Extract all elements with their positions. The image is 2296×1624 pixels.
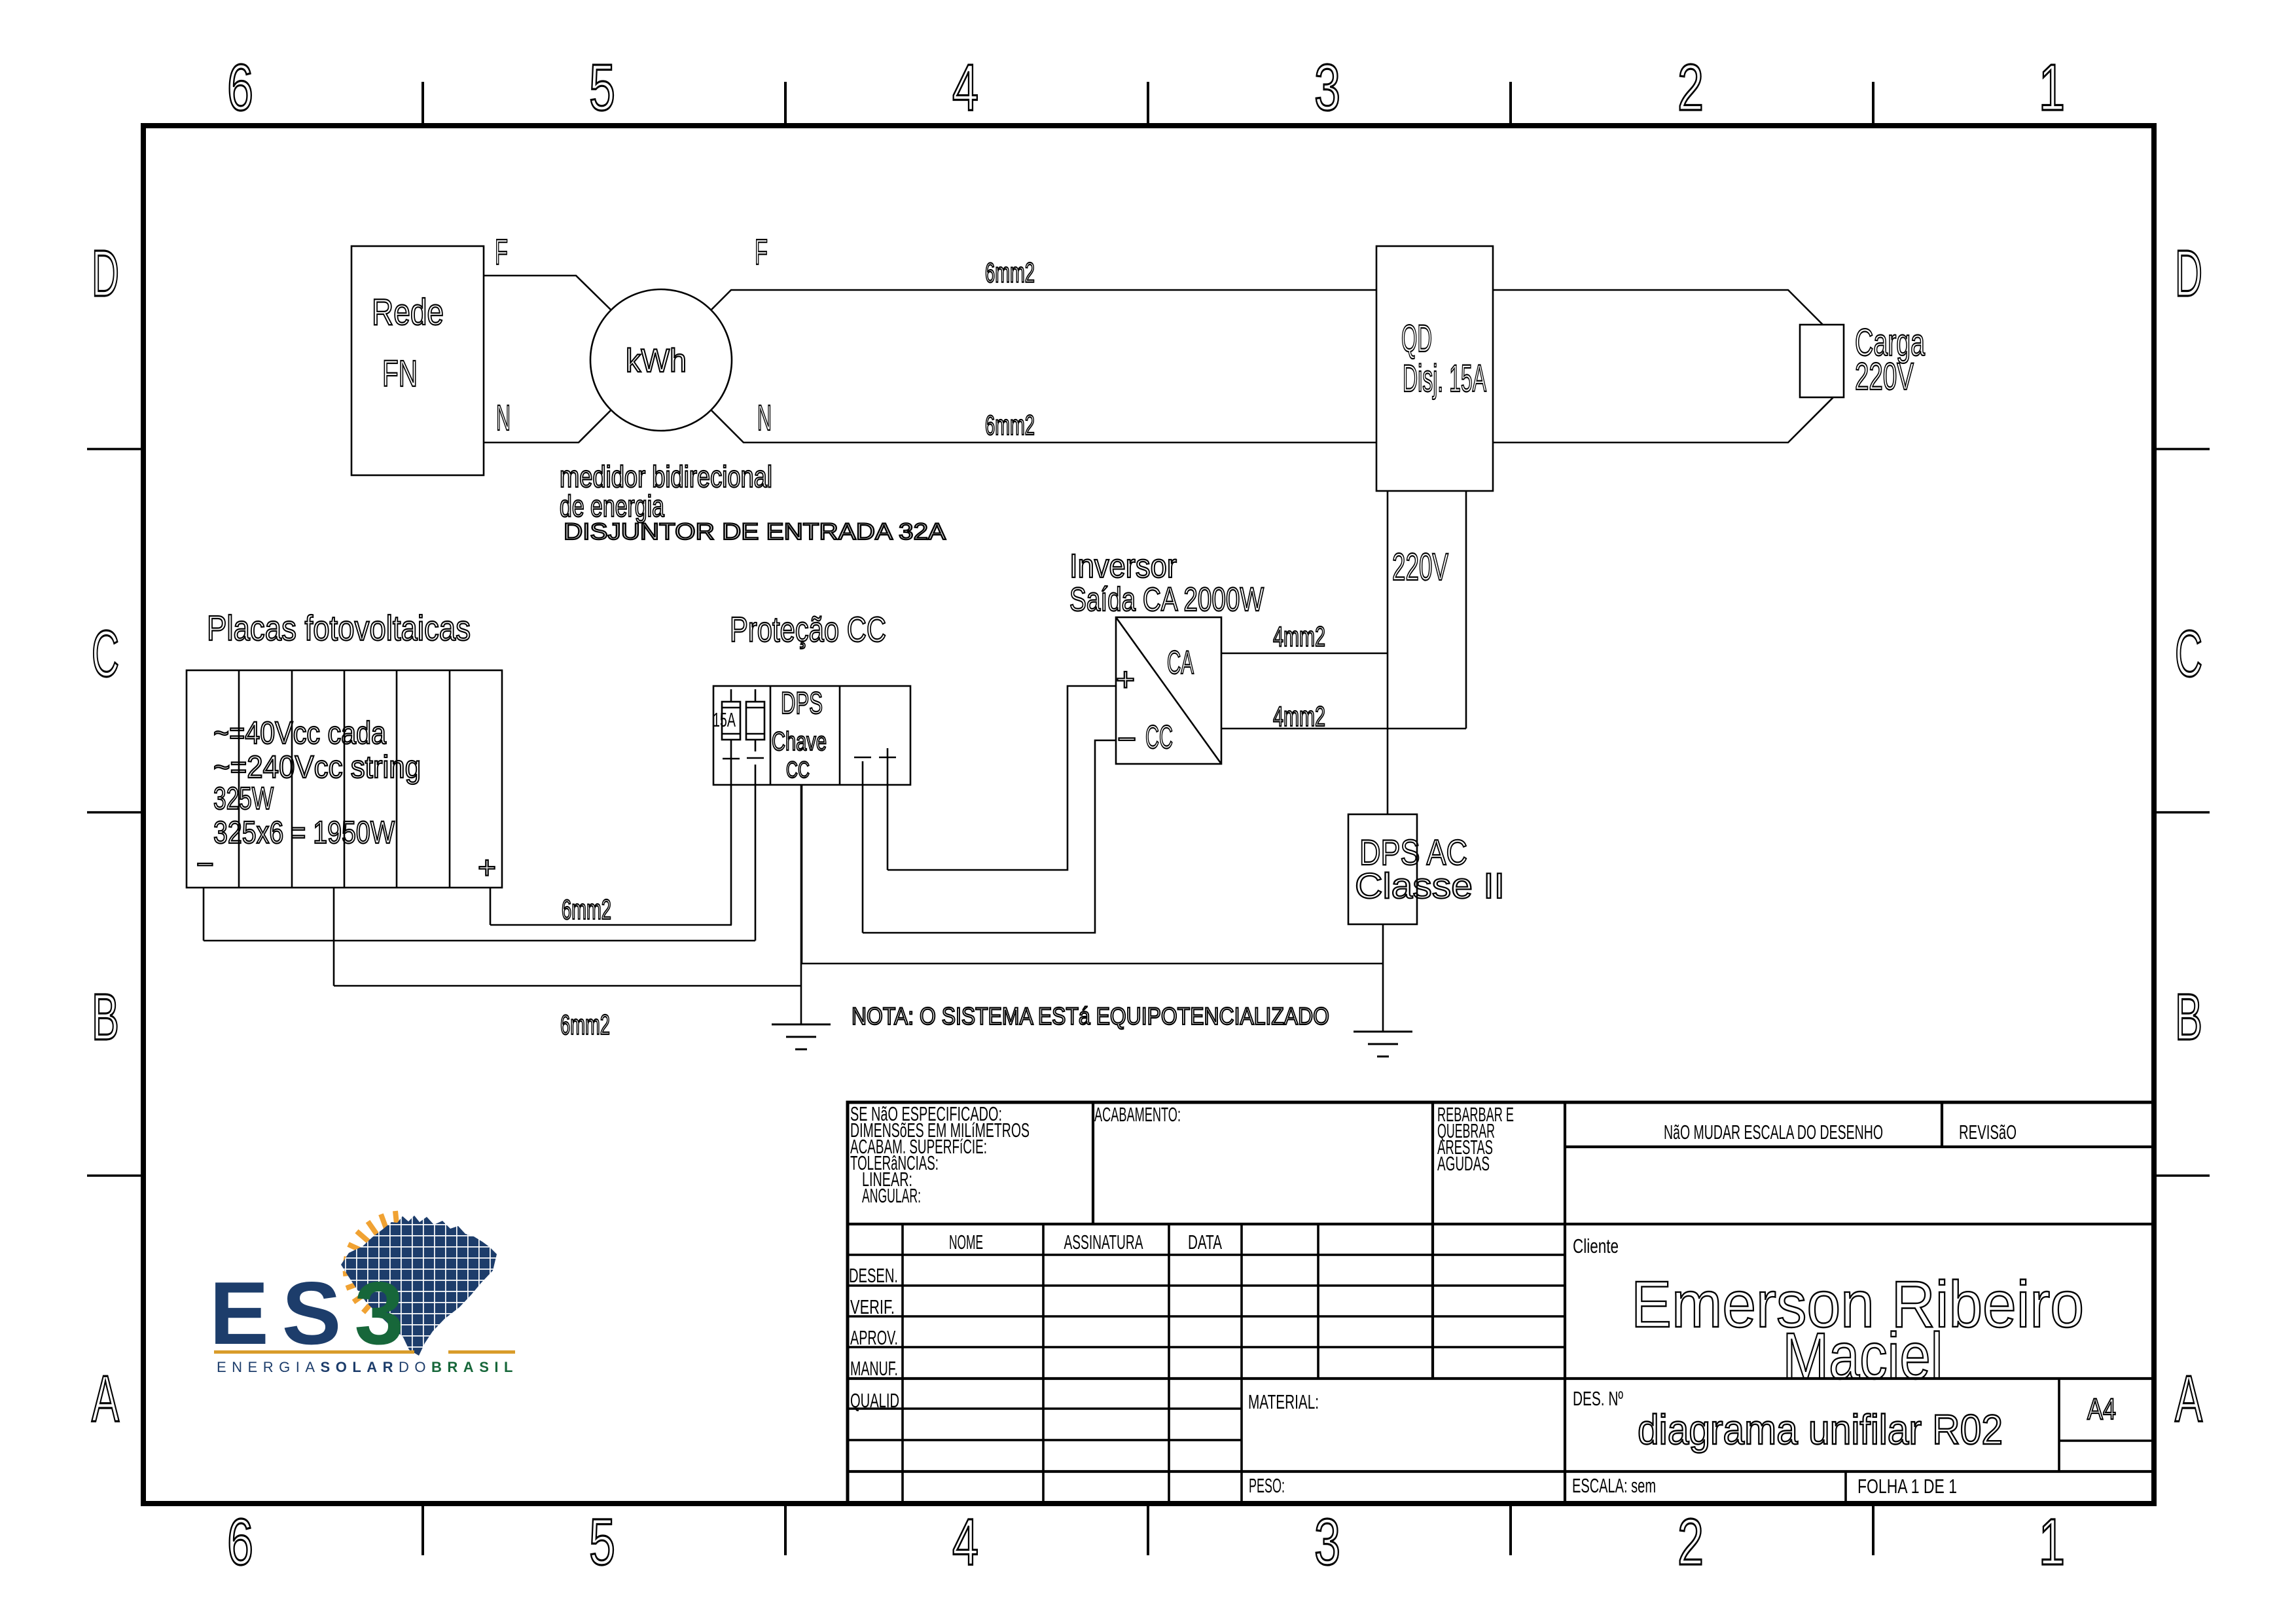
svg-text:6mm2: 6mm2 (985, 257, 1035, 289)
svg-text:kWh: kWh (626, 342, 687, 379)
svg-text:B: B (92, 981, 119, 1054)
svg-text:C: C (2175, 617, 2202, 691)
svg-text:4mm2: 4mm2 (1273, 621, 1325, 653)
svg-text:FN: FN (382, 353, 418, 395)
svg-text:5: 5 (589, 51, 615, 124)
svg-text:F: F (755, 232, 768, 272)
svg-text:5: 5 (589, 1506, 615, 1579)
svg-text:NãO MUDAR ESCALA DO DESENHO: NãO MUDAR ESCALA DO DESENHO (1664, 1121, 1883, 1144)
svg-text:6mm2: 6mm2 (985, 410, 1035, 441)
svg-text:MANUF.: MANUF. (850, 1357, 898, 1380)
svg-text:A4: A4 (2087, 1392, 2116, 1426)
svg-text:Maciel: Maciel (1783, 1320, 1943, 1393)
svg-text:APROV.: APROV. (850, 1326, 898, 1349)
svg-text:325x6 = 1950W: 325x6 = 1950W (213, 816, 395, 850)
svg-text:4: 4 (952, 51, 978, 124)
svg-text:1: 1 (2039, 1506, 2065, 1579)
svg-text:de energia: de energia (560, 489, 664, 523)
svg-text:N: N (496, 397, 511, 438)
svg-text:3: 3 (1314, 51, 1340, 124)
svg-text:3: 3 (1314, 1506, 1340, 1579)
svg-text:4: 4 (952, 1506, 978, 1579)
svg-text:15A: 15A (713, 708, 736, 731)
svg-text:DES. Nº: DES. Nº (1573, 1387, 1623, 1410)
svg-text:AGUDAS: AGUDAS (1437, 1152, 1490, 1175)
svg-text:PESO:: PESO: (1249, 1474, 1285, 1497)
svg-text:6mm2: 6mm2 (560, 1009, 610, 1041)
svg-text:1: 1 (2039, 51, 2065, 124)
svg-text:DATA: DATA (1188, 1231, 1222, 1254)
svg-text:C: C (92, 617, 119, 691)
svg-text:ASSINATURA: ASSINATURA (1064, 1231, 1143, 1254)
svg-text:+: + (478, 851, 496, 886)
svg-text:B: B (2175, 981, 2202, 1054)
svg-text:2: 2 (1677, 1506, 1704, 1579)
svg-text:ANGULAR:: ANGULAR: (862, 1184, 921, 1207)
svg-text:A: A (92, 1362, 119, 1435)
svg-text:Saída CA 2000W: Saída CA 2000W (1069, 581, 1264, 618)
svg-text:A: A (2175, 1362, 2202, 1435)
svg-text:2: 2 (1677, 51, 1704, 124)
svg-text:DPS: DPS (781, 685, 823, 720)
svg-text:FOLHA 1 DE 1: FOLHA 1 DE 1 (1857, 1475, 1957, 1498)
svg-text:~=240Vcc string: ~=240Vcc string (213, 750, 421, 785)
svg-text:D: D (2175, 237, 2202, 310)
svg-text:Rede: Rede (372, 291, 444, 333)
svg-text:MATERIAL:: MATERIAL: (1248, 1390, 1319, 1413)
svg-text:Disj. 15A: Disj. 15A (1403, 357, 1486, 400)
svg-text:DISJUNTOR DE ENTRADA 32A: DISJUNTOR DE ENTRADA 32A (564, 519, 946, 545)
svg-text:QD: QD (1401, 317, 1432, 360)
svg-text:diagrama unifilar R02: diagrama unifilar R02 (1638, 1406, 2003, 1453)
svg-text:DESEN.: DESEN. (849, 1264, 898, 1287)
svg-text:ESCALA: sem: ESCALA: sem (1572, 1474, 1656, 1497)
svg-text:CA: CA (1167, 644, 1194, 681)
svg-text:−: − (196, 847, 214, 881)
svg-text:VERIF.: VERIF. (850, 1295, 895, 1318)
svg-text:N: N (757, 397, 772, 438)
svg-text:ENERGIASOLARDOBRASIL: ENERGIASOLARDOBRASIL (217, 1359, 518, 1375)
svg-text:6: 6 (227, 1506, 253, 1579)
svg-text:CC: CC (786, 757, 810, 783)
svg-text:Cliente: Cliente (1573, 1235, 1619, 1257)
svg-text:QUALID: QUALID (850, 1389, 899, 1412)
svg-text:Chave: Chave (772, 727, 827, 756)
svg-text:NOTA: O SISTEMA ESTá EQUIPOTEN: NOTA: O SISTEMA ESTá EQUIPOTENCIALIZADO (852, 1003, 1329, 1030)
svg-text:−: − (1117, 721, 1136, 757)
svg-text:Placas fotovoltaicas: Placas fotovoltaicas (207, 609, 471, 648)
svg-text:4mm2: 4mm2 (1273, 701, 1325, 732)
svg-text:~=40Vcc cada: ~=40Vcc cada (213, 716, 386, 751)
svg-text:Proteção CC: Proteção CC (730, 610, 886, 649)
svg-text:325W: 325W (213, 782, 274, 816)
svg-text:NOME: NOME (949, 1231, 983, 1254)
svg-text:ACABAMENTO:: ACABAMENTO: (1094, 1103, 1181, 1126)
svg-text:CC: CC (1145, 719, 1173, 755)
svg-text:6: 6 (227, 51, 253, 124)
svg-text:+: + (1116, 661, 1135, 698)
svg-text:220V: 220V (1855, 355, 1914, 398)
svg-text:D: D (92, 237, 119, 310)
svg-text:Classe II: Classe II (1355, 865, 1505, 906)
svg-text:F: F (495, 232, 508, 272)
svg-text:REVISãO: REVISãO (1959, 1121, 2017, 1144)
svg-text:ES3: ES3 (209, 1263, 417, 1363)
svg-text:6mm2: 6mm2 (562, 894, 611, 926)
svg-text:Inversor: Inversor (1069, 547, 1177, 585)
svg-text:220V: 220V (1392, 546, 1448, 588)
